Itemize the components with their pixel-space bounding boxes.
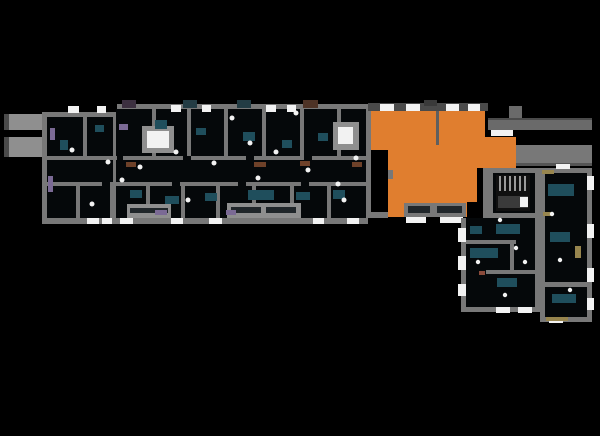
window: [97, 106, 106, 113]
furniture-item: [575, 246, 581, 258]
wall-segment: [246, 182, 301, 186]
balcony: [4, 137, 46, 157]
wall-segment: [76, 186, 80, 218]
door-mark: [336, 182, 341, 187]
corridor-edge: [516, 163, 592, 166]
stair-tread: [499, 176, 501, 191]
furniture-item: [126, 162, 136, 167]
terrace-glass: [266, 207, 296, 213]
furniture-item: [352, 162, 362, 167]
door-mark: [186, 198, 191, 203]
door-mark: [503, 293, 507, 297]
furniture-item: [550, 232, 570, 242]
furniture-item: [282, 140, 292, 148]
wall-segment: [181, 186, 185, 218]
furniture-item: [318, 133, 328, 141]
stair-tread: [509, 176, 511, 191]
stair-tread: [514, 176, 516, 191]
wall-segment: [110, 182, 172, 186]
roof-bump: [303, 100, 318, 108]
door-mark: [523, 260, 527, 264]
furniture-item: [196, 128, 206, 135]
window: [468, 104, 480, 111]
window: [458, 228, 466, 242]
window-glass: [437, 206, 462, 213]
door-mark: [514, 246, 518, 250]
door-mark: [120, 178, 125, 183]
corridor-band: [516, 145, 592, 166]
stair-landing-mark: [520, 197, 528, 207]
window: [496, 307, 510, 313]
door-mark: [248, 141, 253, 146]
window: [313, 218, 324, 224]
light-well-core: [338, 127, 353, 144]
window: [587, 298, 594, 310]
window: [120, 218, 133, 224]
window: [202, 105, 211, 112]
corridor-stub: [509, 106, 522, 118]
furniture-item: [119, 124, 128, 130]
window-sill: [440, 217, 463, 223]
window: [587, 268, 594, 282]
wall-segment: [47, 182, 102, 186]
window: [171, 218, 183, 224]
furniture-item: [497, 278, 517, 287]
wall-segment: [47, 156, 117, 160]
roof-bump: [424, 100, 437, 106]
furniture-item: [155, 120, 167, 129]
window: [587, 224, 594, 238]
stair-tread: [504, 176, 506, 191]
wall-segment: [486, 270, 535, 274]
roof-bump: [183, 100, 197, 108]
furniture-item: [470, 226, 482, 234]
wall-segment: [123, 156, 183, 160]
door-mark: [274, 150, 279, 155]
furniture-item: [165, 196, 179, 204]
door-mark: [476, 260, 480, 264]
door-mark: [568, 288, 572, 292]
main-wing: [42, 100, 371, 224]
furniture-item: [226, 210, 236, 215]
furniture-item: [155, 210, 167, 215]
balcony: [4, 114, 46, 130]
door-mark: [174, 150, 179, 155]
window: [587, 176, 594, 190]
furniture-item: [496, 224, 520, 234]
furniture-item: [248, 190, 274, 200]
wall-segment: [187, 109, 191, 156]
wall-segment: [216, 186, 220, 218]
wall-segment: [191, 156, 246, 160]
furniture-item: [130, 190, 142, 198]
staircase: [496, 175, 530, 211]
wall-segment: [366, 109, 371, 218]
floor-plan-canvas: [0, 0, 600, 436]
corridor-edge: [488, 118, 592, 120]
furniture-item: [48, 176, 53, 192]
door-mark: [230, 116, 235, 121]
door-mark: [70, 148, 75, 153]
light-well: [333, 122, 359, 150]
window: [209, 218, 222, 224]
wall-segment: [262, 109, 266, 156]
window: [491, 130, 513, 136]
light-well-core: [147, 131, 169, 148]
furniture-item: [552, 294, 576, 303]
window: [458, 256, 466, 270]
door-mark: [558, 258, 562, 262]
wall-segment: [300, 109, 304, 156]
wall-segment: [371, 212, 388, 218]
window: [406, 104, 420, 111]
wall-segment: [254, 156, 304, 160]
window: [380, 104, 394, 111]
window: [556, 164, 570, 169]
furniture-item: [296, 192, 310, 200]
door-mark: [306, 168, 311, 173]
furniture-item: [205, 193, 217, 201]
furniture-item: [470, 248, 498, 258]
furniture-item: [542, 170, 554, 174]
light-well: [142, 126, 174, 153]
door-mark: [354, 156, 359, 161]
window: [458, 284, 466, 296]
stair-tread: [519, 176, 521, 191]
wall-segment: [510, 244, 514, 270]
window: [266, 105, 276, 112]
balcony-cap: [4, 137, 9, 157]
furniture-item: [548, 184, 574, 196]
wall-segment: [110, 186, 114, 218]
window: [87, 218, 99, 224]
furniture-item: [60, 140, 68, 150]
furniture-item: [546, 317, 568, 321]
door-mark: [256, 176, 261, 181]
door-mark: [498, 218, 502, 222]
wall-segment: [180, 182, 238, 186]
furniture-item: [50, 128, 55, 140]
door-mark: [550, 212, 554, 216]
roof-bump: [237, 100, 251, 108]
unit-divider-wall: [436, 111, 439, 145]
wall-segment: [224, 109, 228, 156]
door-mark: [90, 202, 95, 207]
furniture-item: [254, 162, 266, 167]
wall-segment: [466, 240, 516, 244]
door-mark: [212, 161, 217, 166]
furniture-item: [243, 132, 255, 141]
furniture-item: [479, 271, 485, 275]
furniture-item: [95, 125, 104, 132]
roof-bump: [122, 100, 136, 108]
wall-segment: [388, 170, 393, 179]
door-mark: [106, 160, 111, 165]
stair-tread: [524, 176, 526, 191]
wall-segment: [83, 117, 87, 156]
wall-segment: [327, 186, 331, 218]
window: [102, 218, 112, 224]
window: [446, 104, 459, 111]
furniture-item: [300, 161, 310, 166]
window: [171, 105, 181, 112]
balcony-cap: [4, 114, 9, 130]
window: [518, 307, 532, 313]
window: [347, 218, 359, 224]
window-sill: [406, 217, 426, 223]
window: [68, 106, 79, 113]
window-glass: [408, 206, 430, 213]
door-mark: [138, 165, 143, 170]
door-mark: [342, 198, 347, 203]
door-mark: [294, 111, 299, 116]
